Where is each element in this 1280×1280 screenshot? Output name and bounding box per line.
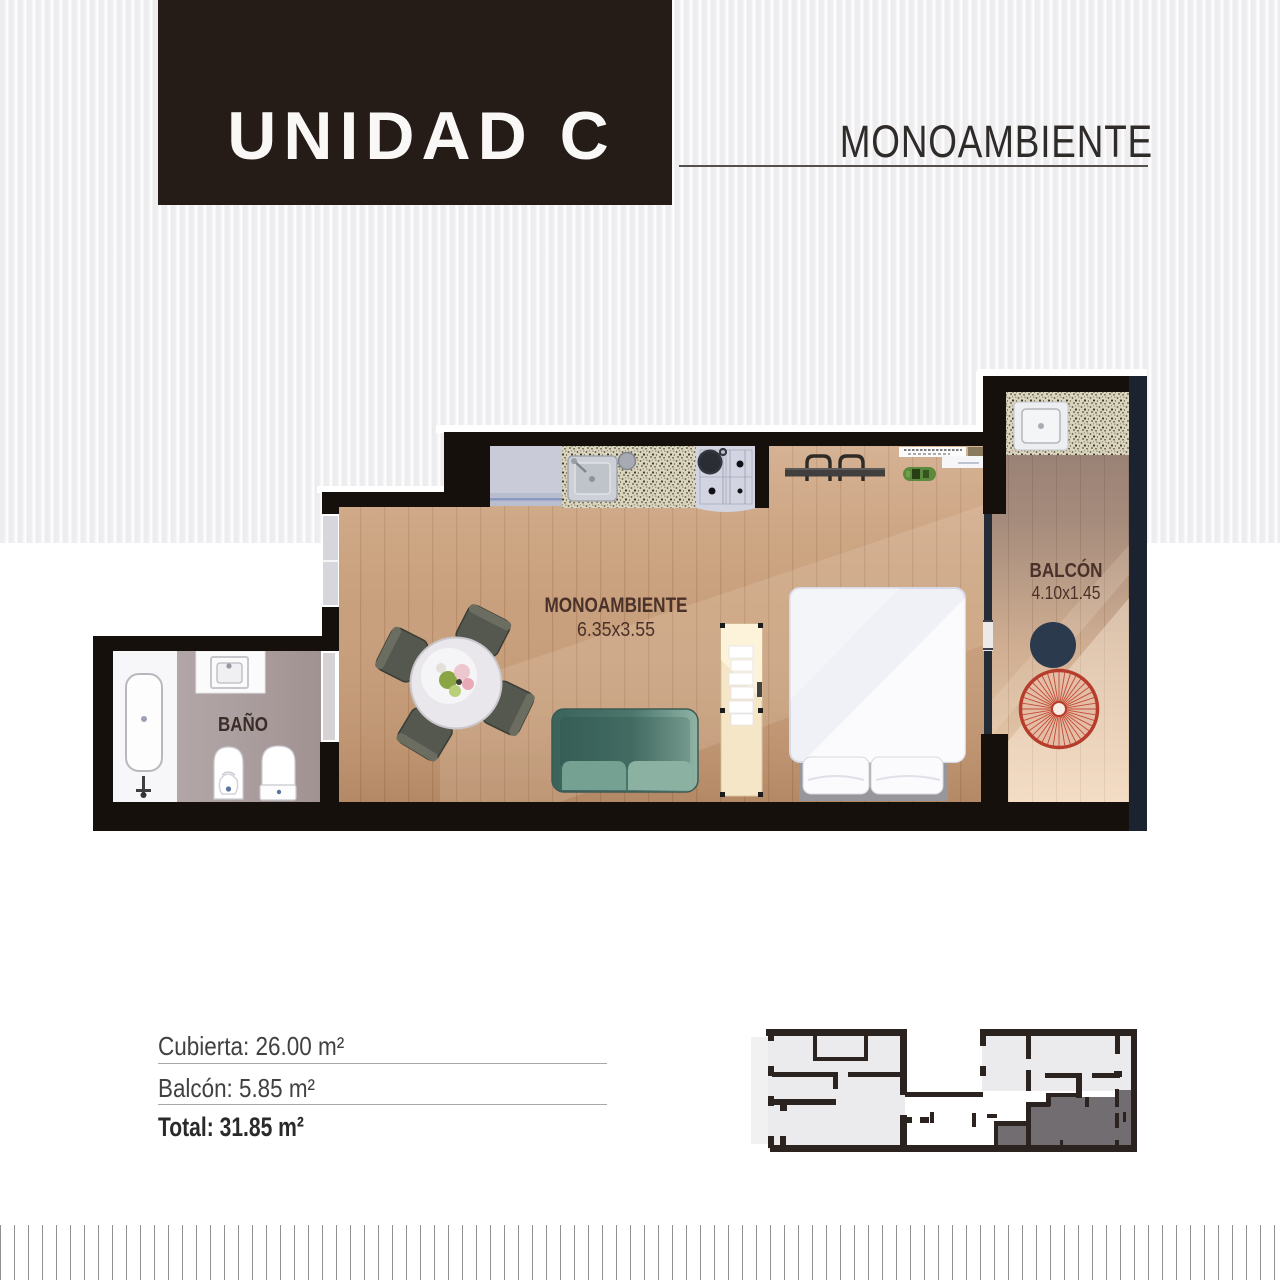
- svg-text:BALCÓN: BALCÓN: [1030, 558, 1103, 582]
- svg-text:BAÑO: BAÑO: [218, 713, 268, 736]
- svg-text:6.35x3.55: 6.35x3.55: [577, 619, 655, 641]
- svg-text:4.10x1.45: 4.10x1.45: [1032, 583, 1101, 603]
- svg-text:MONOAMBIENTE: MONOAMBIENTE: [545, 594, 688, 617]
